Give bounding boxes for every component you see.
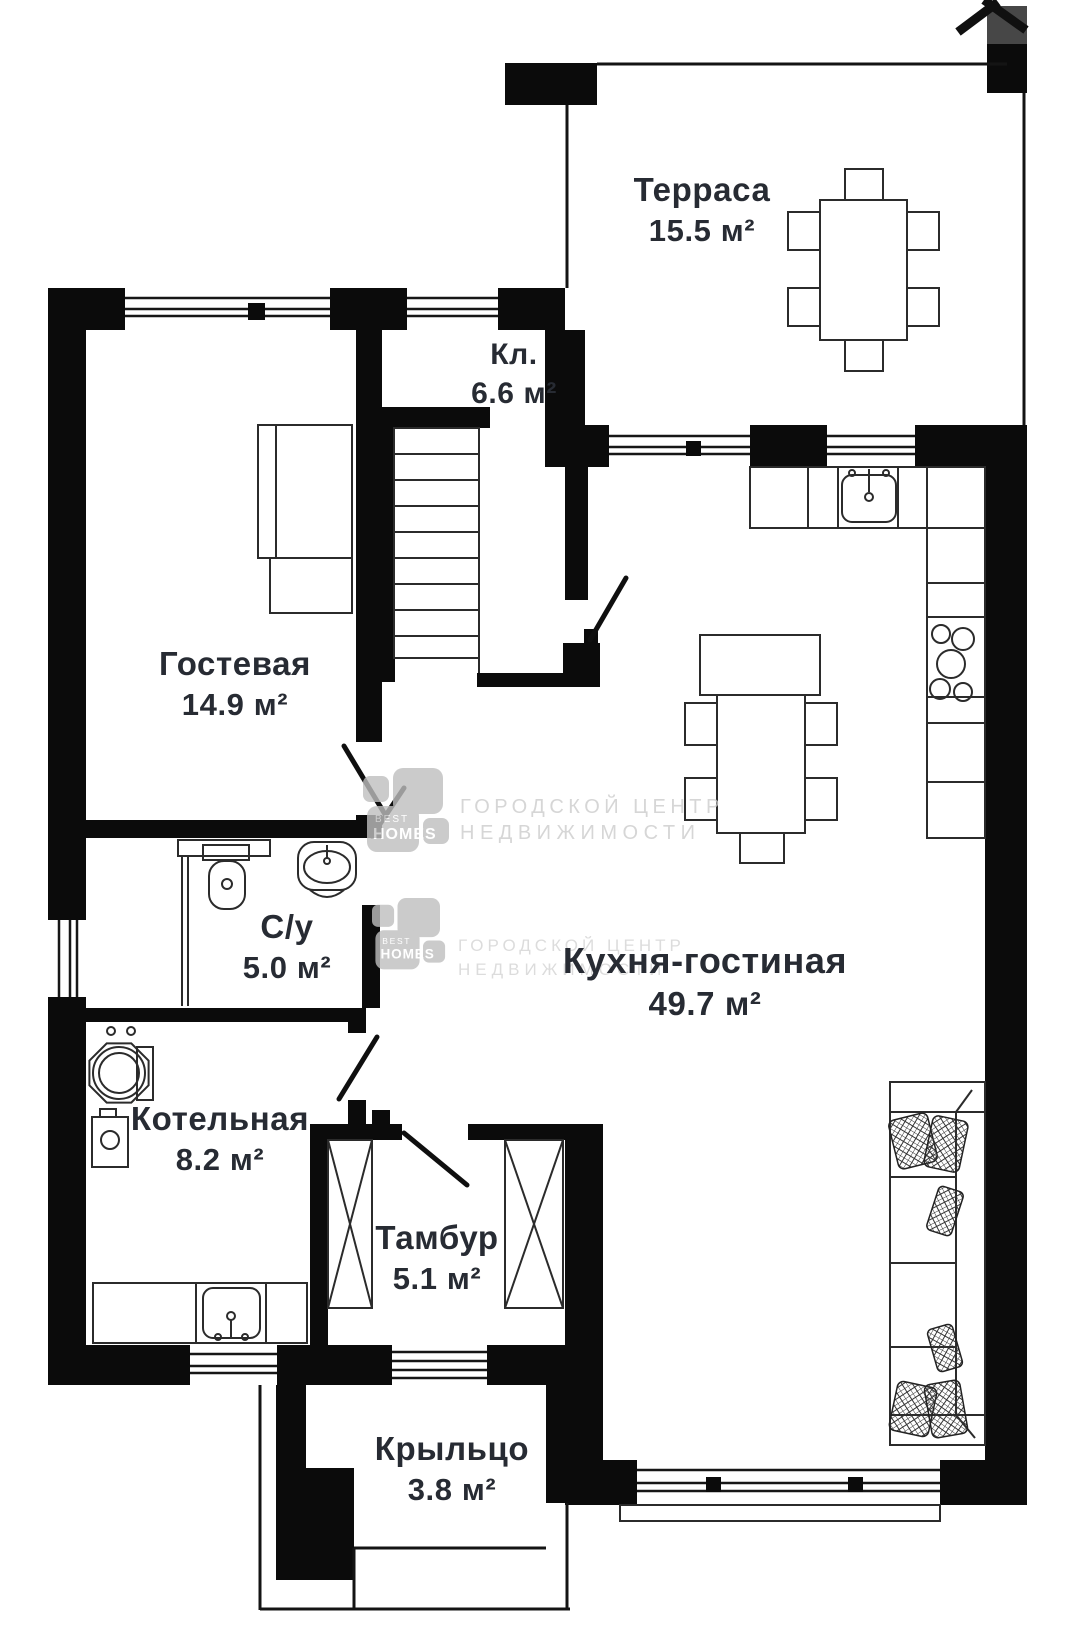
wall-bathroom-top xyxy=(86,820,382,838)
terrace-chair xyxy=(845,169,883,200)
room-area: 49.7 м² xyxy=(563,985,847,1023)
toilet xyxy=(203,845,249,909)
terrace-chair xyxy=(907,288,939,326)
wall-bottom-3 xyxy=(487,1345,590,1385)
room-name: Кл. xyxy=(471,338,557,373)
room-label-kitchen: Кухня-гостиная 49.7 м² xyxy=(563,940,847,1023)
porch-right-block xyxy=(546,1385,590,1503)
wall-hall-corner-stub xyxy=(563,643,600,687)
room-name: С/у xyxy=(243,908,332,946)
terrace-table xyxy=(820,200,907,340)
wall-bathroom-bottom xyxy=(86,1008,360,1022)
wall-vestibule-top-2 xyxy=(468,1124,565,1140)
wall-left-upper xyxy=(48,288,86,920)
boiler-sink xyxy=(203,1288,260,1340)
dining-chair xyxy=(803,703,837,745)
door-kitchen xyxy=(590,578,626,640)
room-name: Котельная xyxy=(131,1100,309,1138)
watermark-line2: НЕДВИЖИМОСТИ xyxy=(460,822,700,845)
watermark-brand-top: BEST xyxy=(382,937,411,946)
closet-panel-left xyxy=(328,1140,372,1308)
window-closet xyxy=(407,288,498,330)
window-guestroom xyxy=(125,288,330,330)
wall-top-left xyxy=(48,288,125,330)
room-area: 5.1 м² xyxy=(375,1261,498,1297)
window-terrace-kitchen-2 xyxy=(827,425,915,467)
room-area: 3.8 м² xyxy=(375,1472,529,1508)
room-area: 5.0 м² xyxy=(243,950,332,986)
window-bathroom-left xyxy=(48,920,86,997)
stove-burners xyxy=(930,625,974,701)
wall-kitchen-top-2 xyxy=(750,425,827,467)
room-name: Гостевая xyxy=(159,645,311,683)
door-boiler xyxy=(339,1033,377,1100)
wall-top-mid xyxy=(330,288,407,330)
closet-panel-right xyxy=(505,1140,563,1308)
terrace-dining-set xyxy=(788,169,939,371)
bathroom-shelf xyxy=(178,840,270,856)
boiler-counter xyxy=(93,1283,307,1343)
best-homes-logo-icon: BEST HOMES xyxy=(372,898,435,959)
wall-bottom-2 xyxy=(277,1345,392,1385)
wall-hall-kitchen xyxy=(565,455,588,600)
terrace-chair xyxy=(845,340,883,371)
room-area: 6.6 м² xyxy=(471,377,557,412)
watermark-brand-bottom: HOMES xyxy=(373,826,437,844)
sofa xyxy=(888,1082,985,1445)
room-label-terrace: Терраса 15.5 м² xyxy=(634,171,771,249)
floor-plan-page: BEST HOMES ГОРОДСКОЙ ЦЕНТР НЕДВИЖИМОСТИ … xyxy=(0,0,1072,1647)
boiler-tank xyxy=(89,1043,153,1102)
wall-top-right xyxy=(498,288,565,330)
wall-stairs-bottom xyxy=(359,658,395,682)
kitchen-sink xyxy=(842,469,896,522)
dining-bench xyxy=(700,635,820,695)
room-area: 8.2 м² xyxy=(131,1142,309,1178)
door-hinge-vestibule xyxy=(372,1110,390,1126)
kitchen-counter-right xyxy=(927,528,985,838)
best-homes-logo-icon: BEST HOMES xyxy=(363,768,451,852)
dining-chair xyxy=(685,703,719,745)
window-boiler-bottom xyxy=(190,1345,277,1385)
room-name: Терраса xyxy=(634,171,771,209)
dining-chair xyxy=(740,833,784,863)
kitchen-counter-top xyxy=(750,467,985,528)
room-name: Крыльцо xyxy=(375,1430,529,1468)
entry-door-threshold xyxy=(392,1345,487,1385)
dining-table xyxy=(717,695,805,833)
wall-stairs-left xyxy=(382,428,394,660)
watermark-brand-bottom: HOMES xyxy=(381,947,435,962)
room-label-guestroom: Гостевая 14.9 м² xyxy=(159,645,311,723)
window-kitchen-bottom xyxy=(620,1460,940,1521)
room-label-vestibule: Тамбур 5.1 м² xyxy=(375,1219,498,1297)
terrace-chair xyxy=(907,212,939,250)
wall-boiler-right-upper xyxy=(348,1008,366,1033)
terrace-chair xyxy=(788,288,820,326)
door-vestibule xyxy=(404,1133,467,1185)
room-label-bathroom: С/у 5.0 м² xyxy=(243,908,332,986)
terrace-chair xyxy=(788,212,820,250)
wall-kitchen-bottom-2 xyxy=(940,1460,1027,1505)
room-area: 14.9 м² xyxy=(159,687,311,723)
wall-right xyxy=(985,425,1027,1505)
water-heater xyxy=(92,1109,128,1167)
staircase xyxy=(394,428,479,673)
wall-left-lower xyxy=(48,997,86,1345)
wall-boiler-vestibule-divider xyxy=(310,1124,328,1345)
boiler-room-fixtures xyxy=(89,1027,307,1343)
room-label-porch: Крыльцо 3.8 м² xyxy=(375,1430,529,1508)
porch-left-column xyxy=(276,1385,306,1580)
kitchen-dining-set xyxy=(685,635,837,863)
room-label-boiler: Котельная 8.2 м² xyxy=(131,1100,309,1178)
wall-boiler-right-lower xyxy=(348,1100,366,1126)
bathroom-sink xyxy=(298,842,356,897)
room-label-closet: Кл. 6.6 м² xyxy=(471,338,557,411)
dining-chair xyxy=(803,778,837,820)
wall-bottom-1 xyxy=(48,1345,190,1385)
room-area: 15.5 м² xyxy=(634,213,771,249)
window-terrace-kitchen-1 xyxy=(609,425,750,467)
terrace-corner-block xyxy=(505,63,597,105)
watermark-brand-top: BEST xyxy=(375,814,409,825)
porch-step-block xyxy=(306,1468,354,1580)
guestroom-bed xyxy=(258,425,352,613)
room-name: Тамбур xyxy=(375,1219,498,1257)
room-name: Кухня-гостиная xyxy=(563,940,847,981)
watermark-line1: ГОРОДСКОЙ ЦЕНТР xyxy=(460,796,724,819)
